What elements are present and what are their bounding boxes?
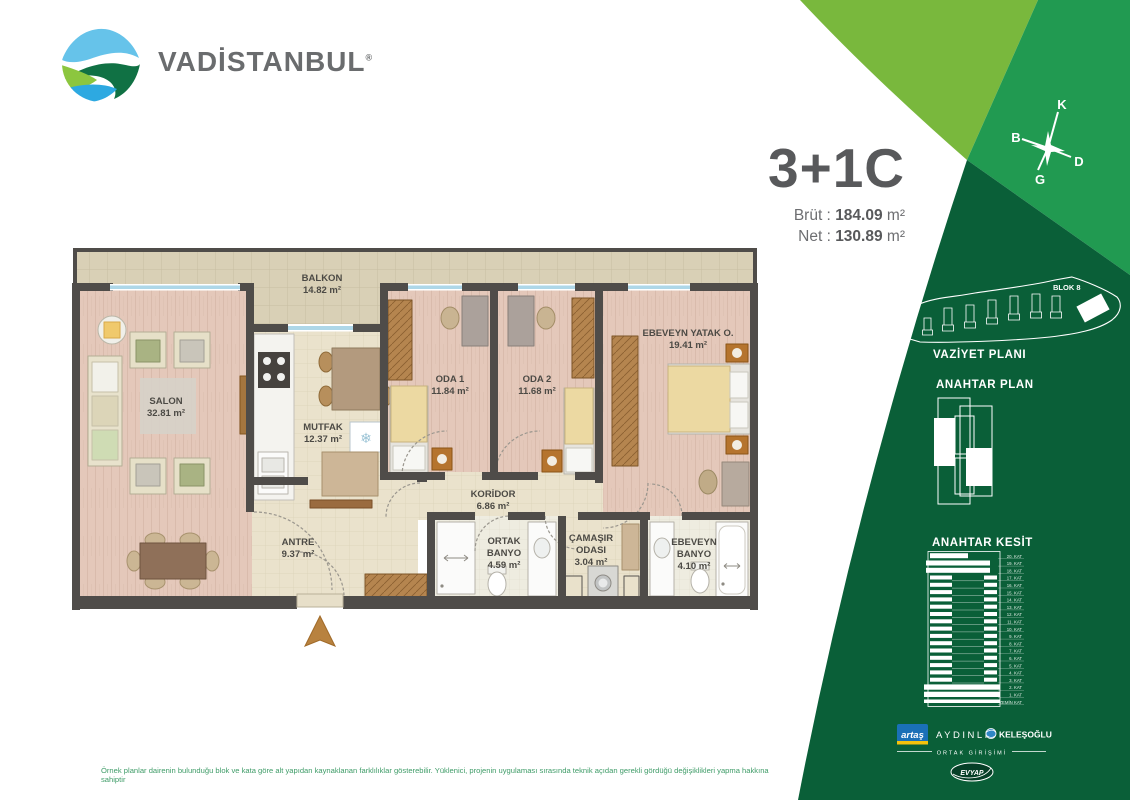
room-label-10: EBEVEYN [671,537,717,548]
camasir-niche [624,576,639,598]
oda2-bed [564,388,594,474]
balcony-sliding-door [288,326,353,330]
ebeveyn-stool [699,470,717,494]
room-label-5: EBEVEYN YATAK O. [643,328,734,339]
kesit-floor-label: 20. KAT [1007,554,1023,559]
room-label-7: ANTRE [282,537,315,548]
kesit-floor-label: 2. KAT [1009,685,1022,690]
oda2-ebeveyn-wall [595,283,603,483]
fridge-snowflake-icon: ❄ [360,430,372,446]
floor-plan: ❄ [72,248,758,646]
banyo-sink-counter [528,522,556,596]
compass-west-label: B [1011,130,1020,145]
oda1-wardrobe [388,300,412,380]
outer-wall-bottom [72,596,297,609]
oda1-oda2-wall [490,283,498,480]
kesit-floor-label: 5. KAT [1009,663,1022,668]
kesit-floor-label: 10. KAT [1007,627,1023,632]
blok-label: BLOK 8 [1053,283,1081,292]
compass-east-label: D [1074,154,1083,169]
oda2-wardrobe [572,298,594,378]
anahtar-kesit-title: ANAHTAR KESİT [932,536,1033,549]
ebeveyn-window [628,286,690,290]
kesit-floor-label: 16. KAT [1007,583,1023,588]
brut-area-line: Brüt : 184.09 m² [720,205,905,226]
vaziyet-plani-title: VAZİYET PLANI [933,348,1026,361]
disclaimer-text: Örnek planlar dairenin bulunduğu blok ve… [101,766,771,784]
evyap-logo-text: EVYAP [960,770,984,777]
room-label-0: BALKON [302,273,343,284]
room-label-4: 11.68 m² [518,386,556,397]
camasir-cabinet [622,524,639,570]
anahtar-plan-title: ANAHTAR PLAN [936,379,1034,391]
room-label-10: 4.10 m² [678,561,711,572]
kitchen-cabinet [322,452,378,496]
room-label-1: 32.81 m² [147,408,185,419]
oda1-desk [462,296,488,346]
brochure-page: K B D G BLOK 8 VAZİYET PLANI [0,0,1130,800]
unit-code-title: 3+1C [760,136,905,200]
room-label-7: 9.37 m² [282,549,315,560]
balcony-parapet [73,248,757,252]
registered-mark: ® [366,53,374,63]
evyap-logo: EVYAP [951,763,993,781]
kesit-floor-label: 18. KAT [1007,568,1023,573]
kesit-floor-label: 7. KAT [1009,649,1022,654]
panel-facet-dark [798,160,1130,800]
bathtub [716,522,748,598]
salon-window [110,286,240,290]
entrance-threshold [297,594,343,607]
kitchen-stove [258,352,290,388]
room-label-2: MUTFAK [303,422,343,433]
kesit-floor-label: ZEMİN KAT [999,700,1022,705]
oda1-window [408,286,462,290]
oda2-desk [508,296,534,346]
artas-logo-text: artaş [901,730,924,741]
washing-machine [588,566,618,598]
room-label-9: 3.04 m² [575,557,608,568]
key-plan-unit-highlight-left [934,418,955,466]
oda2-window [518,286,575,290]
oda1-bed [390,386,428,474]
room-label-8: 4.59 m² [488,560,521,571]
kesit-floor-label: 13. KAT [1007,605,1023,610]
room-label-0: 14.82 m² [303,285,341,296]
kesit-floor-label: 11. KAT [1007,620,1022,625]
room-label-4: ODA 2 [523,374,552,385]
camasir-wall-right [640,516,648,604]
kesit-floor-label: 1. KAT [1009,693,1022,698]
key-plan-unit-highlight-right [966,448,992,486]
kesit-floor-label: 14. KAT [1007,598,1023,603]
room-label-8: ORTAK [487,536,520,547]
oda1-chair [441,307,459,329]
compass-north-label: K [1057,97,1067,112]
room-label-9: ODASI [576,545,606,556]
kesit-floor-label: 3. KAT [1009,678,1022,683]
joint-venture-label: ORTAK GİRİŞİMİ [937,750,1008,757]
room-label-1: SALON [149,396,182,407]
oda2-chair [537,307,555,329]
antre-closet [365,574,427,598]
entrance-arrow-icon [305,616,335,646]
kesit-floor-label: 9. KAT [1009,634,1022,639]
kesit-floor-label: 17. KAT [1007,576,1023,581]
scene-graphics: K B D G BLOK 8 VAZİYET PLANI [0,0,1130,800]
ebeveyn-bed [668,364,750,434]
room-label-10: BANYO [677,549,711,560]
brand-wordmark: VADİSTANBUL® [158,46,373,78]
room-label-3: 11.84 m² [431,386,469,397]
ebeveyn-dresser [722,462,749,506]
vadistanbul-logo-icon [60,22,142,106]
antre-console [310,500,372,508]
room-label-9: ÇAMAŞIR [569,533,613,544]
room-label-8: BANYO [487,548,521,559]
compass-south-label: G [1035,172,1045,187]
kesit-floor-label: 19. KAT [1007,561,1023,566]
room-label-2: 12.37 m² [304,434,342,445]
room-label-6: KORİDOR [471,489,516,500]
outer-wall-right [750,283,758,610]
room-label-3: ODA 1 [436,374,465,385]
artas-logo-underline [897,741,928,745]
ebeveyn-wardrobe [612,336,638,466]
kesit-floor-label: 15. KAT [1007,590,1023,595]
net-area-line: Net : 130.89 m² [720,226,905,247]
kelesoglu-globe-icon [986,729,996,739]
oda1-wall [380,283,388,480]
kesit-floor-label: 6. KAT [1009,656,1022,661]
kesit-floor-label: 8. KAT [1009,641,1022,646]
camasir-wall-left [558,516,566,604]
kesit-floor-label: 12. KAT [1007,612,1023,617]
ortak-banyo-wall [427,512,435,604]
kesit-floor-label: 4. KAT [1009,671,1022,676]
room-label-5: 19.41 m² [669,340,707,351]
mutfak-antre-wall [246,477,308,485]
unit-area-info: Brüt : 184.09 m² Net : 130.89 m² [720,205,905,247]
room-label-6: 6.86 m² [477,501,510,512]
outer-wall-bottom [343,596,758,609]
outer-wall-left [72,283,80,610]
aydinli-logo-text: AYDINLI [936,730,990,741]
green-panel: K B D G BLOK 8 VAZİYET PLANI [798,0,1130,800]
eb-banyo-sink [650,522,674,596]
kelesoglu-logo-text: KELEŞOĞLU [999,729,1052,740]
